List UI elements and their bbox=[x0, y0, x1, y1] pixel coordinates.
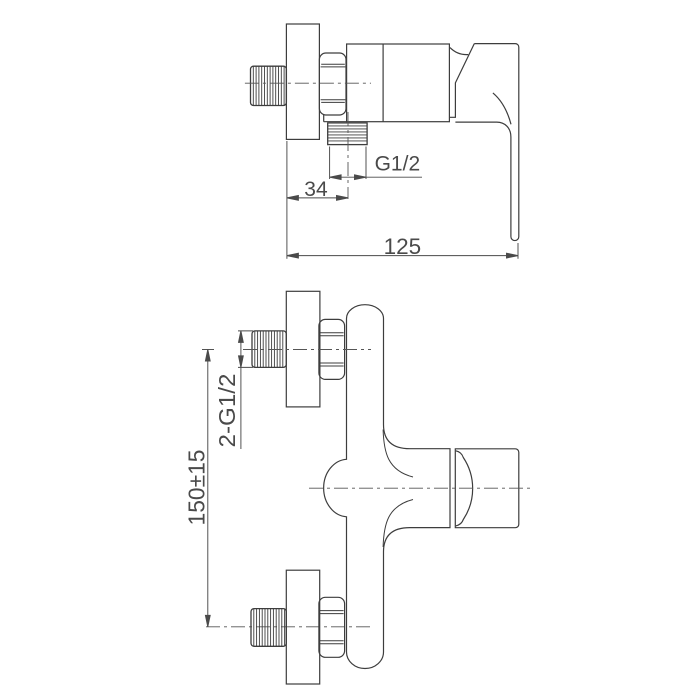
svg-text:34: 34 bbox=[304, 178, 328, 201]
svg-text:2-G1/2: 2-G1/2 bbox=[214, 374, 240, 448]
svg-text:150±15: 150±15 bbox=[184, 450, 210, 526]
svg-text:G1/2: G1/2 bbox=[375, 152, 421, 175]
svg-text:125: 125 bbox=[384, 234, 422, 259]
